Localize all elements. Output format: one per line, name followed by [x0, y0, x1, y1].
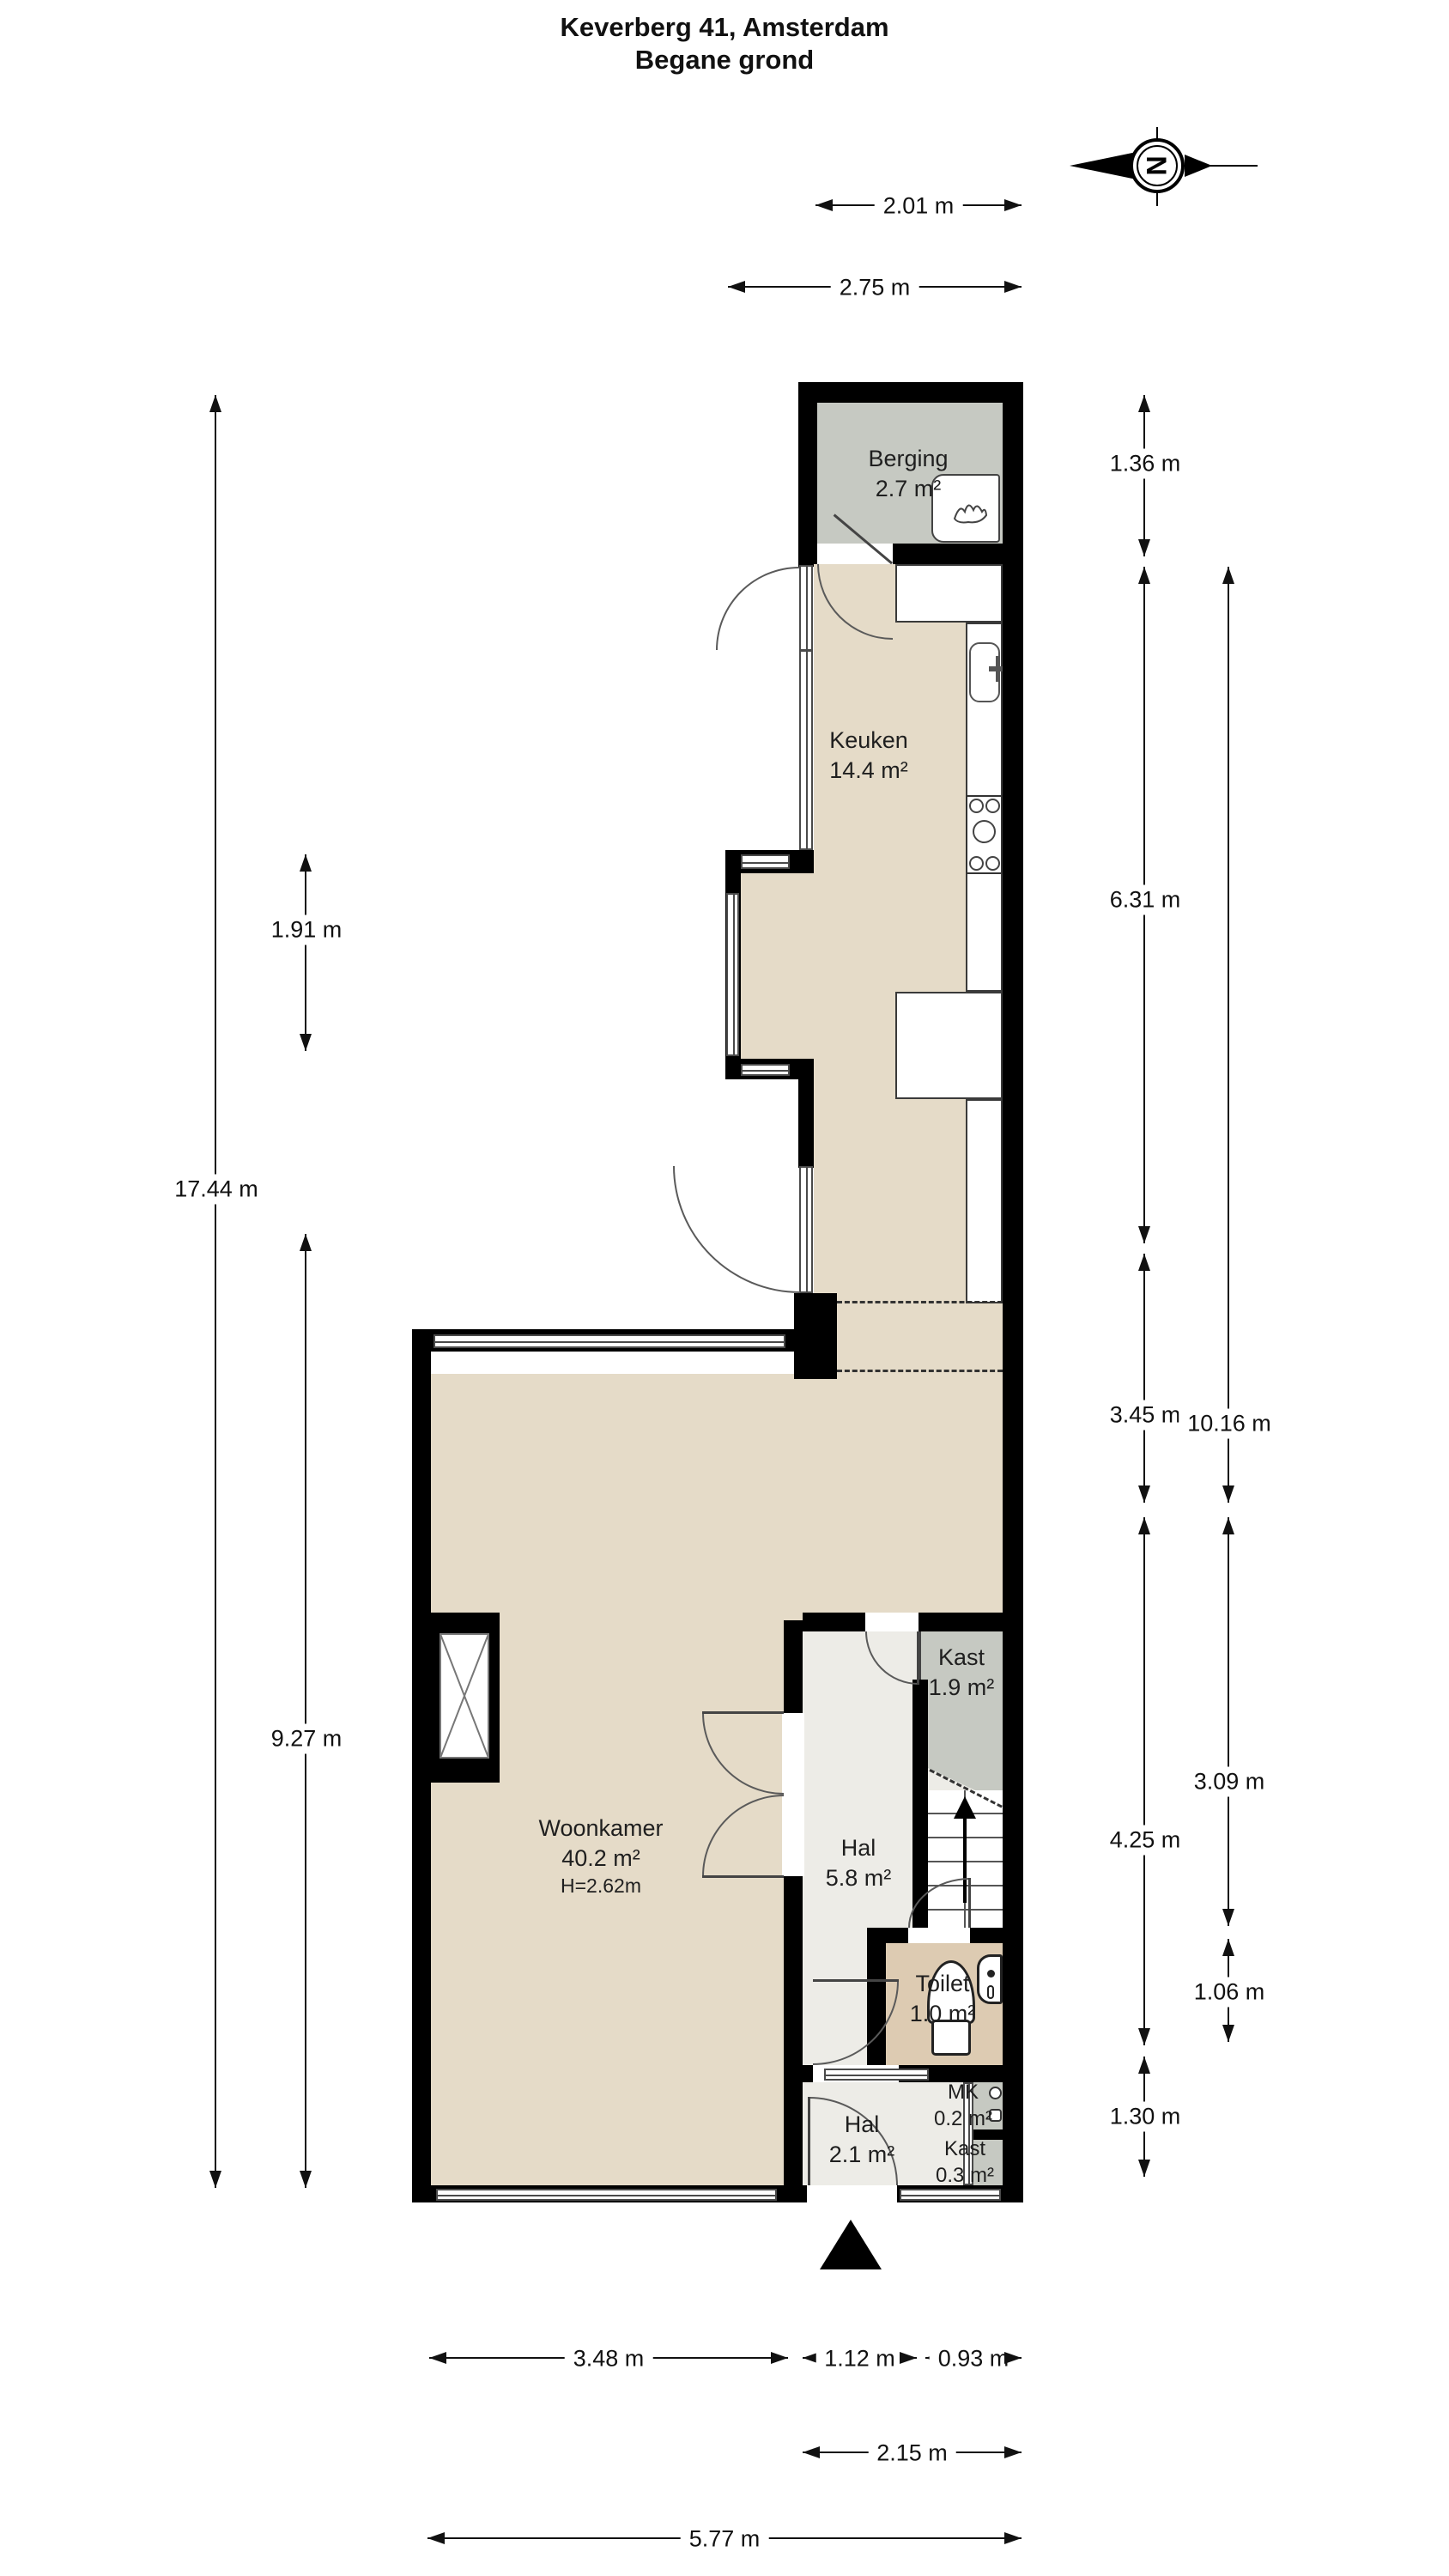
wall-berging-keuken-right — [893, 544, 1003, 564]
keuken-bay-floor — [741, 873, 814, 1060]
room-area: 0.3 m² — [936, 2162, 994, 2189]
wall-keuken-left-mid — [798, 1078, 814, 1168]
dimension-left-lower: 9.27 m — [305, 1234, 306, 2188]
room-name: Toilet — [910, 1969, 976, 1999]
room-label-keuken: Keuken 14.4 m² — [829, 726, 908, 786]
dimension-label: 9.27 m — [263, 1724, 351, 1754]
dimension-label: 1.30 m — [1101, 2102, 1190, 2132]
wall-kast-stairs-left — [912, 1680, 928, 1928]
room-name: Berging — [868, 444, 948, 474]
dimension-label: 1.06 m — [1185, 1978, 1274, 2008]
dimension-label: 1.91 m — [263, 915, 351, 945]
dimension-bottom-kast: 0.93 m — [925, 2357, 1022, 2359]
dimension-bottom-inner: 2.15 m — [803, 2451, 1022, 2453]
room-name: Woonkamer — [538, 1814, 663, 1844]
kitchen-fridge — [966, 1099, 1003, 1303]
window-hal-partition — [824, 2069, 929, 2081]
wall-left — [412, 1329, 431, 2202]
window-step-upper — [741, 854, 790, 869]
entrance-arrow-icon — [820, 2220, 882, 2269]
dimension-label: 2.01 m — [875, 191, 963, 222]
room-label-mk: MK 0.2 m² — [934, 2079, 992, 2132]
room-area: 1.9 m² — [929, 1673, 995, 1703]
dimension-bottom-livingroom: 3.48 m — [429, 2357, 788, 2359]
dimension-right-keuken: 6.31 m — [1143, 567, 1145, 1243]
dimension-label: 3.48 m — [565, 2344, 653, 2374]
page-subtitle: Begane grond — [0, 45, 1449, 76]
dimension-right-outer-low: 1.06 m — [1228, 1939, 1229, 2042]
room-label-hal-klein: Hal 2.1 m² — [829, 2110, 895, 2170]
opening-toilet-door — [908, 1928, 970, 1943]
toilet-sink-tap — [987, 1970, 995, 1978]
door-leaf-kast — [919, 1631, 921, 1680]
wall-berging-left — [798, 382, 817, 564]
room-area: 40.2 m² — [538, 1844, 663, 1874]
window-entree-right — [900, 2189, 1001, 2201]
opening-front-door — [807, 2185, 897, 2202]
stove-burner-center — [973, 820, 996, 843]
room-name: Hal — [826, 1833, 892, 1863]
window-woonkamer-top — [433, 1334, 785, 1348]
kitchen-sink-tap-stem — [996, 656, 1000, 682]
dimension-right-mid: 3.45 m — [1143, 1254, 1145, 1503]
door-keuken-outside-lower-leaf — [799, 1166, 813, 1293]
boiler-flame-icon — [951, 496, 989, 526]
wall-right — [1003, 382, 1023, 2202]
window-step-lower — [741, 1064, 790, 1076]
woonkamer-floor-upper — [431, 1374, 1003, 1620]
wall-woonkamer-hal — [784, 1620, 803, 2185]
door-leaf-toilet — [968, 1878, 971, 1928]
stove-burner — [969, 799, 984, 813]
dimension-label: 4.25 m — [1101, 1826, 1190, 1856]
dimension-label: 0.93 m — [930, 2344, 1018, 2374]
room-area: 2.1 m² — [829, 2140, 895, 2170]
window-woonkamer-bottom — [436, 2189, 777, 2201]
dimension-right-hal: 4.25 m — [1143, 1517, 1145, 2045]
toilet-sink-handle — [987, 1985, 994, 1999]
dimension-label: 2.75 m — [831, 273, 919, 303]
dimension-right-berging: 1.36 m — [1143, 395, 1145, 556]
dimension-label: 1.36 m — [1101, 449, 1190, 479]
dimension-top-inner: 2.01 m — [815, 204, 1022, 206]
room-label-woonkamer: Woonkamer 40.2 m² H=2.62m — [538, 1814, 663, 1899]
door-keuken-outside-upper-leaf — [799, 565, 813, 651]
wall-berging-top — [798, 382, 1023, 403]
dimension-label: 3.09 m — [1185, 1767, 1274, 1797]
room-label-hal-groot: Hal 5.8 m² — [826, 1833, 892, 1893]
dimension-left-total: 17.44 m — [215, 395, 216, 2188]
floorplan-page: { "title": {"line1": "Keverberg 41, Amst… — [0, 0, 1449, 2576]
room-label-toilet: Toilet 1.0 m² — [910, 1969, 976, 2029]
door-leaf-front — [808, 2097, 810, 2185]
dimension-label: 1.12 m — [815, 2344, 904, 2374]
room-label-berging: Berging 2.7 m² — [868, 444, 948, 504]
dimension-label: 17.44 m — [166, 1175, 267, 1205]
room-name: MK — [934, 2079, 992, 2105]
dimension-label: 6.31 m — [1101, 885, 1190, 915]
dimension-right-entree: 1.30 m — [1143, 2057, 1145, 2177]
door-leaf-double-bottom — [702, 1875, 784, 1878]
dimension-right-outer-mid: 3.09 m — [1228, 1517, 1229, 1926]
dimension-label: 2.15 m — [868, 2439, 956, 2469]
window-keuken-left — [799, 650, 813, 850]
compass-letter: N — [1142, 155, 1173, 175]
window-keuken-bay — [726, 893, 739, 1056]
dimension-label: 5.77 m — [681, 2524, 769, 2555]
dimension-bottom-total: 5.77 m — [427, 2537, 1022, 2539]
dimension-top-outer: 2.75 m — [728, 286, 1022, 288]
door-arc-keuken-outside-upper — [716, 567, 799, 650]
room-name: Keuken — [829, 726, 908, 756]
room-name: Hal — [829, 2110, 895, 2140]
room-label-kast-klein: Kast 0.3 m² — [936, 2136, 994, 2189]
dimension-right-outer-total: 10.16 m — [1228, 567, 1229, 1503]
door-leaf-double-top — [702, 1711, 784, 1714]
stove-burner — [969, 856, 984, 871]
dimension-label: 10.16 m — [1179, 1409, 1280, 1439]
compass-arrow-west — [1070, 152, 1137, 179]
room-area: 0.2 m² — [934, 2105, 992, 2132]
room-ceiling-height: H=2.62m — [538, 1874, 663, 1899]
room-name: Kast — [929, 1643, 995, 1673]
door-leaf-hal-partition — [813, 1979, 899, 1982]
room-area: 14.4 m² — [829, 756, 908, 786]
stairs-up-arrow-icon — [954, 1796, 976, 1819]
chimney-shaft-icon — [440, 1633, 489, 1759]
dimension-bottom-door: 1.12 m — [803, 2357, 917, 2359]
open-connection-dash-top — [837, 1301, 1003, 1303]
opening-double-door — [782, 1713, 804, 1876]
compass-wedge-east — [1185, 155, 1212, 177]
room-label-kast-boven: Kast 1.9 m² — [929, 1643, 995, 1703]
page-title: Keverberg 41, Amsterdam — [0, 12, 1449, 43]
kitchen-cupboard-top — [895, 564, 1003, 623]
north-compass-icon: N — [1064, 127, 1270, 209]
open-connection-dash-bottom — [837, 1370, 1003, 1372]
stove-burner — [985, 856, 1000, 871]
room-area: 5.8 m² — [826, 1863, 892, 1893]
room-area: 2.7 m² — [868, 474, 948, 504]
dimension-left-window: 1.91 m — [305, 854, 306, 1051]
kitchen-block-low — [895, 992, 1003, 1099]
door-arc-keuken-outside-lower — [673, 1166, 800, 1293]
dimension-label: 3.45 m — [1101, 1400, 1190, 1431]
wall-pillar-keuken-woonkamer — [794, 1293, 837, 1379]
opening-hal-door — [865, 1613, 919, 1631]
stove-burner — [985, 799, 1000, 813]
room-name: Kast — [936, 2136, 994, 2162]
room-area: 1.0 m² — [910, 1999, 976, 2029]
